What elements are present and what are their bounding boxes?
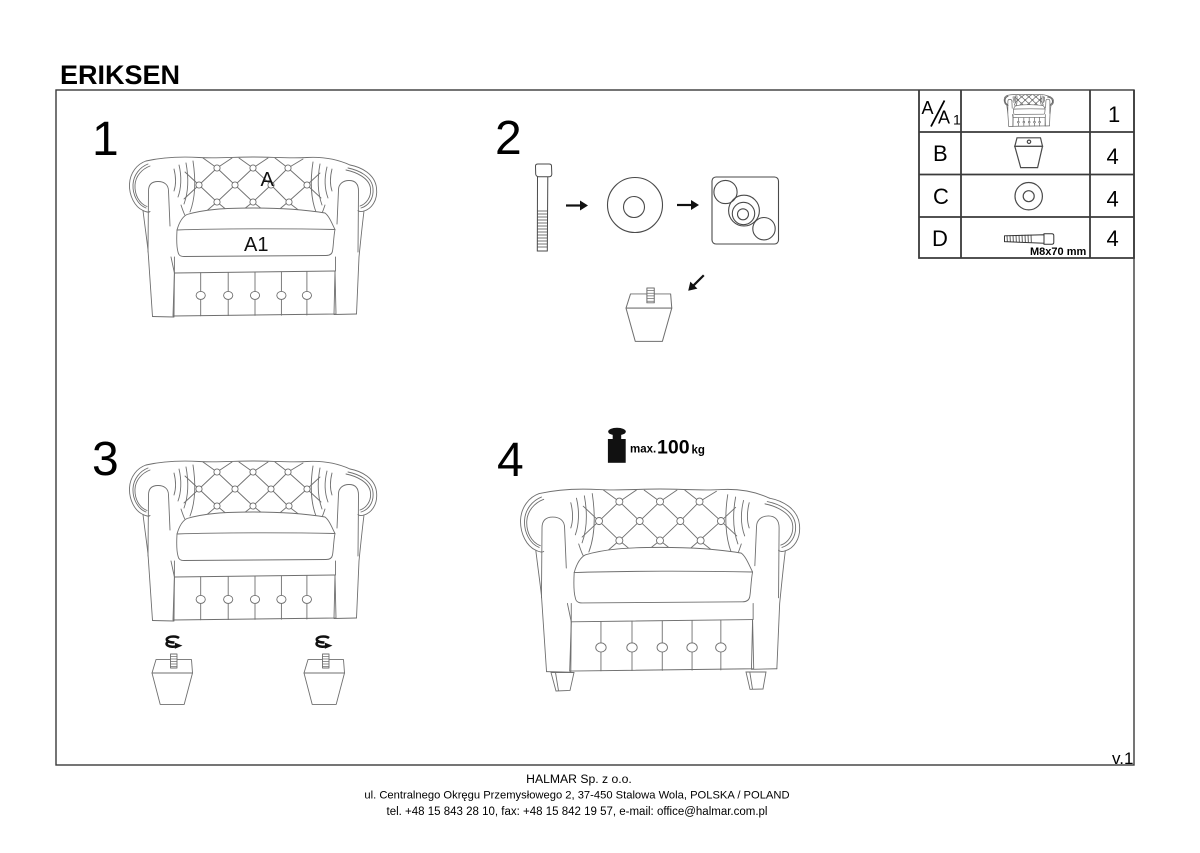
svg-text:4: 4 — [1107, 144, 1119, 169]
svg-text:4: 4 — [497, 434, 524, 487]
svg-text:A: A — [261, 169, 275, 191]
svg-text:HALMAR Sp. z o.o.: HALMAR Sp. z o.o. — [526, 772, 632, 786]
svg-text:D: D — [932, 226, 948, 251]
svg-text:A1: A1 — [244, 234, 268, 256]
svg-text:1: 1 — [92, 113, 119, 166]
svg-text:C: C — [933, 184, 949, 209]
svg-text:max.: max. — [630, 444, 656, 456]
svg-text:ERIKSEN: ERIKSEN — [60, 60, 180, 90]
svg-text:4: 4 — [1107, 187, 1119, 212]
svg-text:A: A — [922, 98, 934, 118]
svg-text:100: 100 — [657, 437, 690, 459]
svg-text:v.1: v.1 — [1112, 749, 1133, 768]
svg-text:M8x70 mm: M8x70 mm — [1030, 246, 1086, 258]
svg-text:ul. Centralnego Okręgu Przemys: ul. Centralnego Okręgu Przemysłowego 2, … — [364, 790, 789, 802]
svg-text:3: 3 — [92, 433, 119, 486]
svg-text:4: 4 — [1107, 226, 1119, 251]
svg-text:B: B — [933, 141, 948, 166]
svg-text:1: 1 — [953, 112, 961, 128]
svg-text:kg: kg — [692, 445, 705, 457]
svg-text:1: 1 — [1108, 102, 1120, 127]
svg-text:2: 2 — [495, 112, 522, 165]
svg-text:tel. +48 15 843 28 10, fax: +4: tel. +48 15 843 28 10, fax: +48 15 842 1… — [387, 806, 768, 818]
